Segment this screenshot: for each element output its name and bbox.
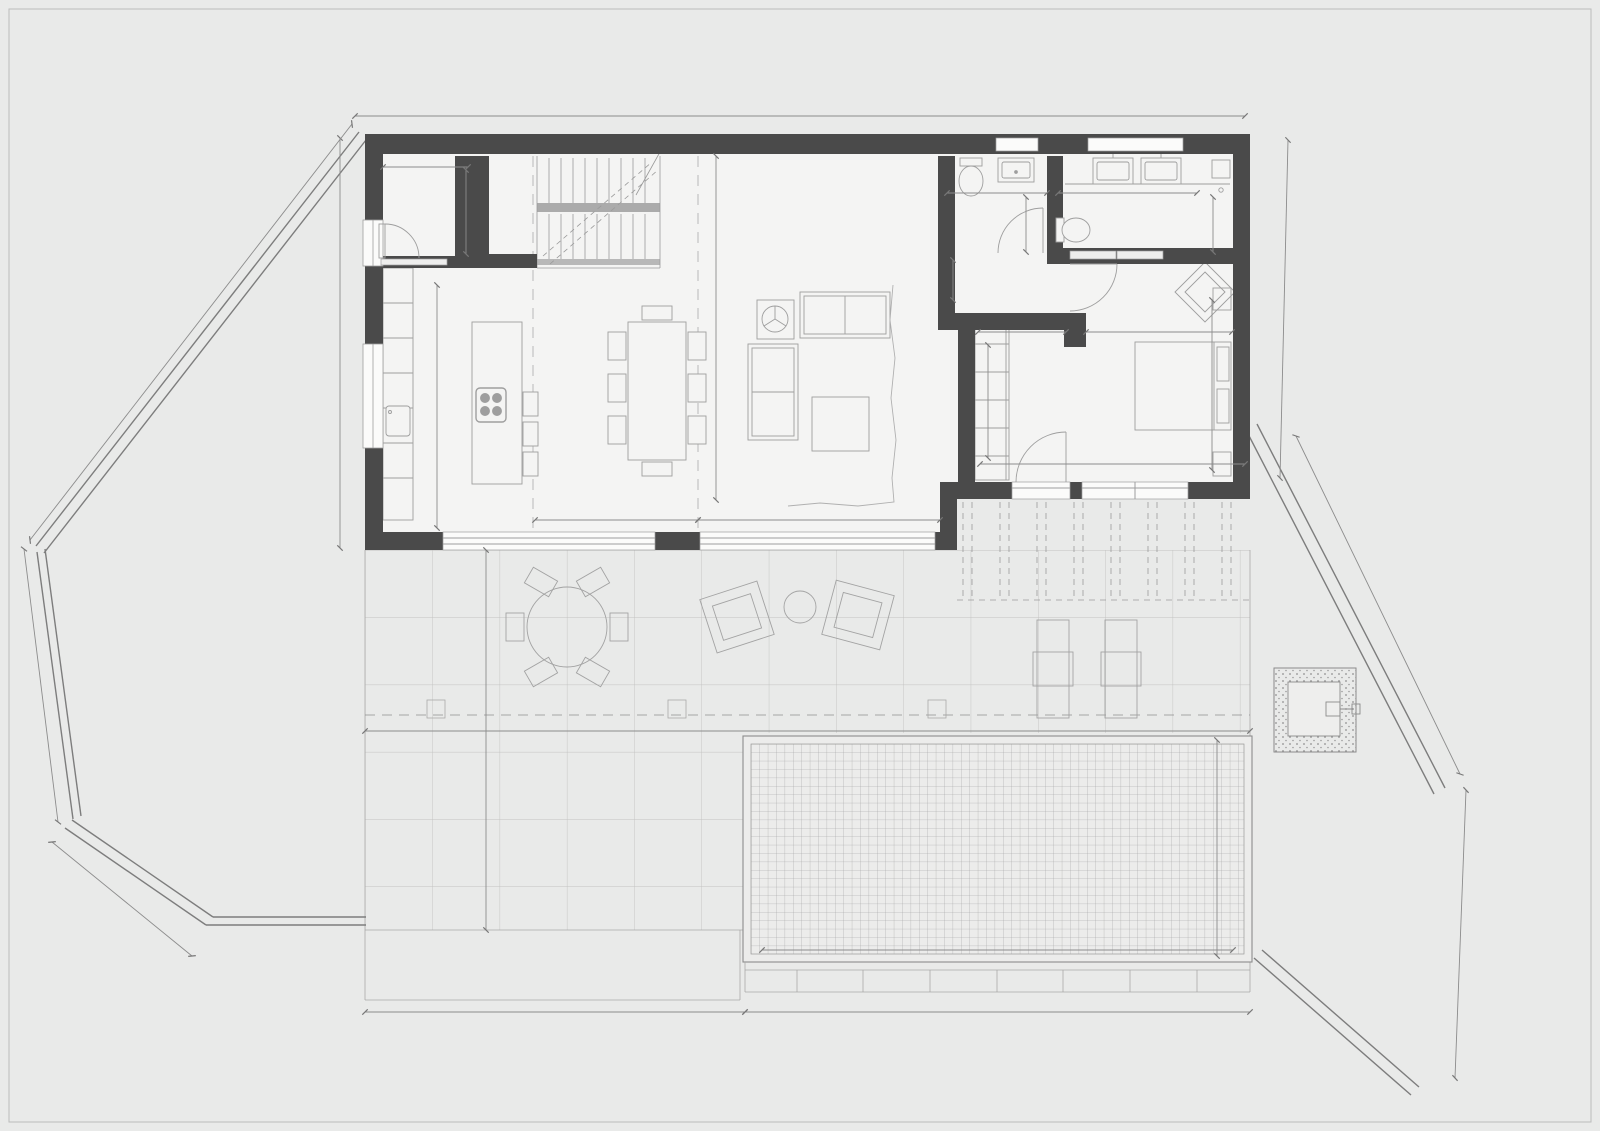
pool [743, 736, 1252, 992]
floor-plan-sheet [0, 0, 1600, 1131]
pool-deck [745, 962, 1250, 992]
floor-plan-drawing [0, 0, 1600, 1131]
outdoor-spa [1274, 668, 1360, 752]
